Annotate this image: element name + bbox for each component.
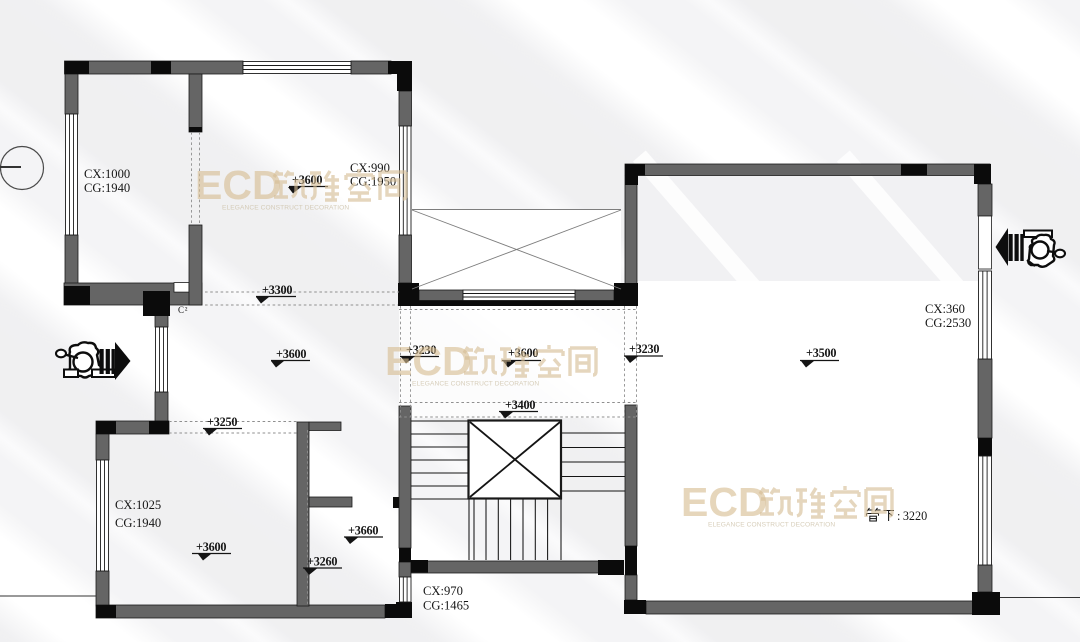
svg-text:C ²: C ² bbox=[178, 305, 188, 315]
svg-text:+3500: +3500 bbox=[806, 346, 836, 360]
svg-text:+3600: +3600 bbox=[276, 347, 306, 361]
svg-text:+3250: +3250 bbox=[207, 415, 237, 429]
svg-text:CX:1025: CX:1025 bbox=[115, 498, 161, 512]
svg-text:+3300: +3300 bbox=[262, 283, 292, 297]
svg-text:CX:1000: CX:1000 bbox=[84, 167, 130, 181]
svg-text:CG:1940: CG:1940 bbox=[115, 516, 161, 530]
svg-text:CG:2530: CG:2530 bbox=[925, 316, 971, 330]
svg-text:CX:970: CX:970 bbox=[423, 584, 463, 598]
svg-text:+3600: +3600 bbox=[196, 540, 226, 554]
svg-text:+3660: +3660 bbox=[348, 524, 378, 538]
svg-text:+3400: +3400 bbox=[505, 398, 535, 412]
svg-text:+3260: +3260 bbox=[307, 555, 337, 569]
svg-text:: 3220: : 3220 bbox=[897, 509, 927, 523]
svg-text:CX:360: CX:360 bbox=[925, 302, 965, 316]
svg-text:CG:1465: CG:1465 bbox=[423, 599, 469, 613]
svg-text:+3230: +3230 bbox=[629, 342, 659, 356]
svg-text:CG:1940: CG:1940 bbox=[84, 181, 130, 195]
